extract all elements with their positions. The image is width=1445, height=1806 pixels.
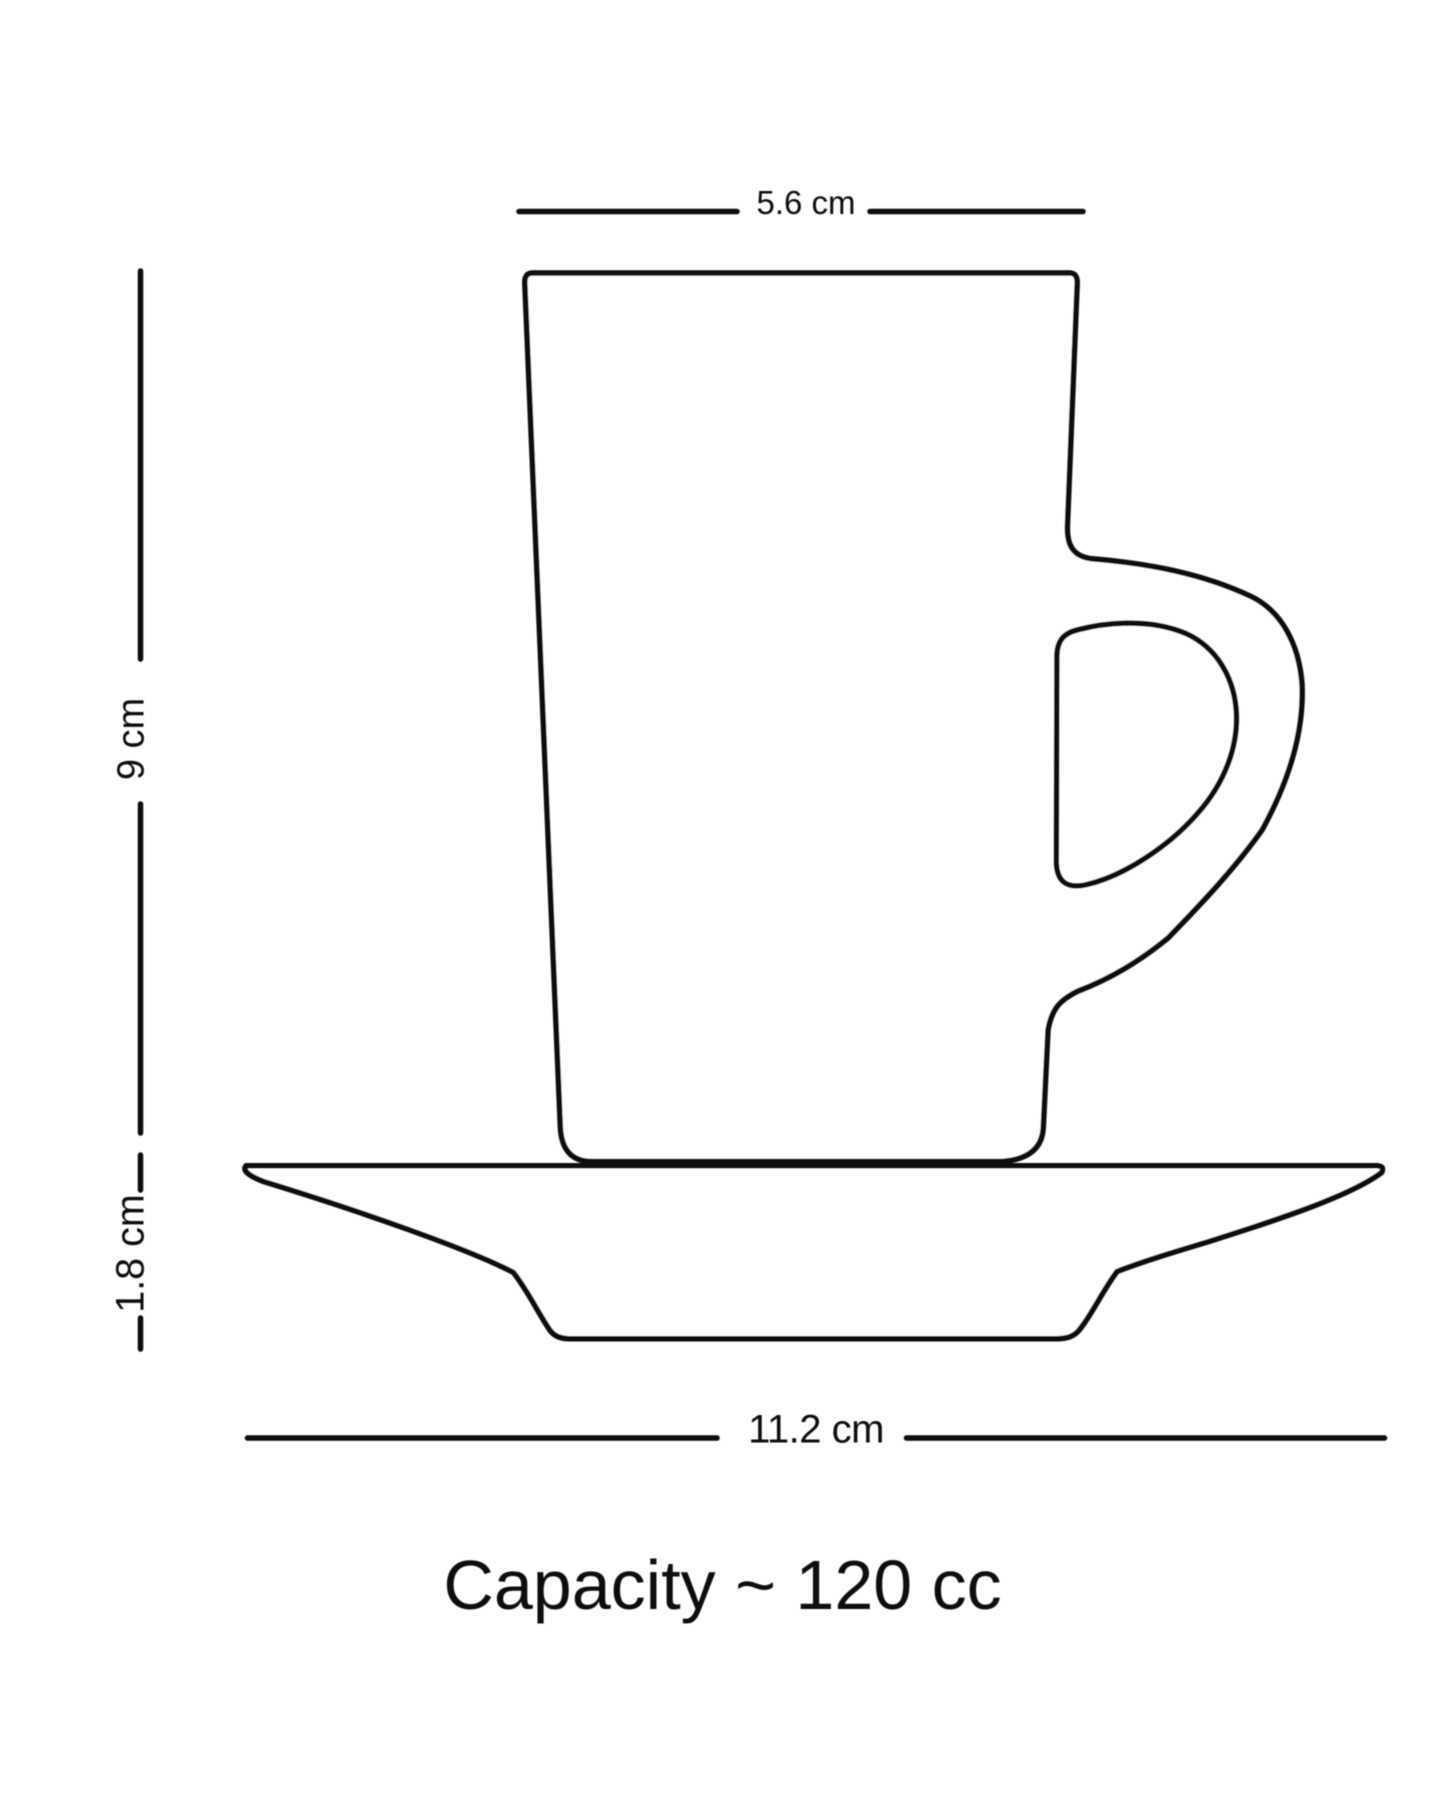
svg-text:11.2 cm: 11.2 cm <box>748 1408 884 1452</box>
svg-text:5.6 cm: 5.6 cm <box>756 184 855 221</box>
svg-text:9 cm: 9 cm <box>111 698 153 780</box>
svg-text:Capacity ~ 120 cc: Capacity ~ 120 cc <box>443 1546 1001 1624</box>
svg-text:1.8 cm: 1.8 cm <box>109 1194 153 1313</box>
